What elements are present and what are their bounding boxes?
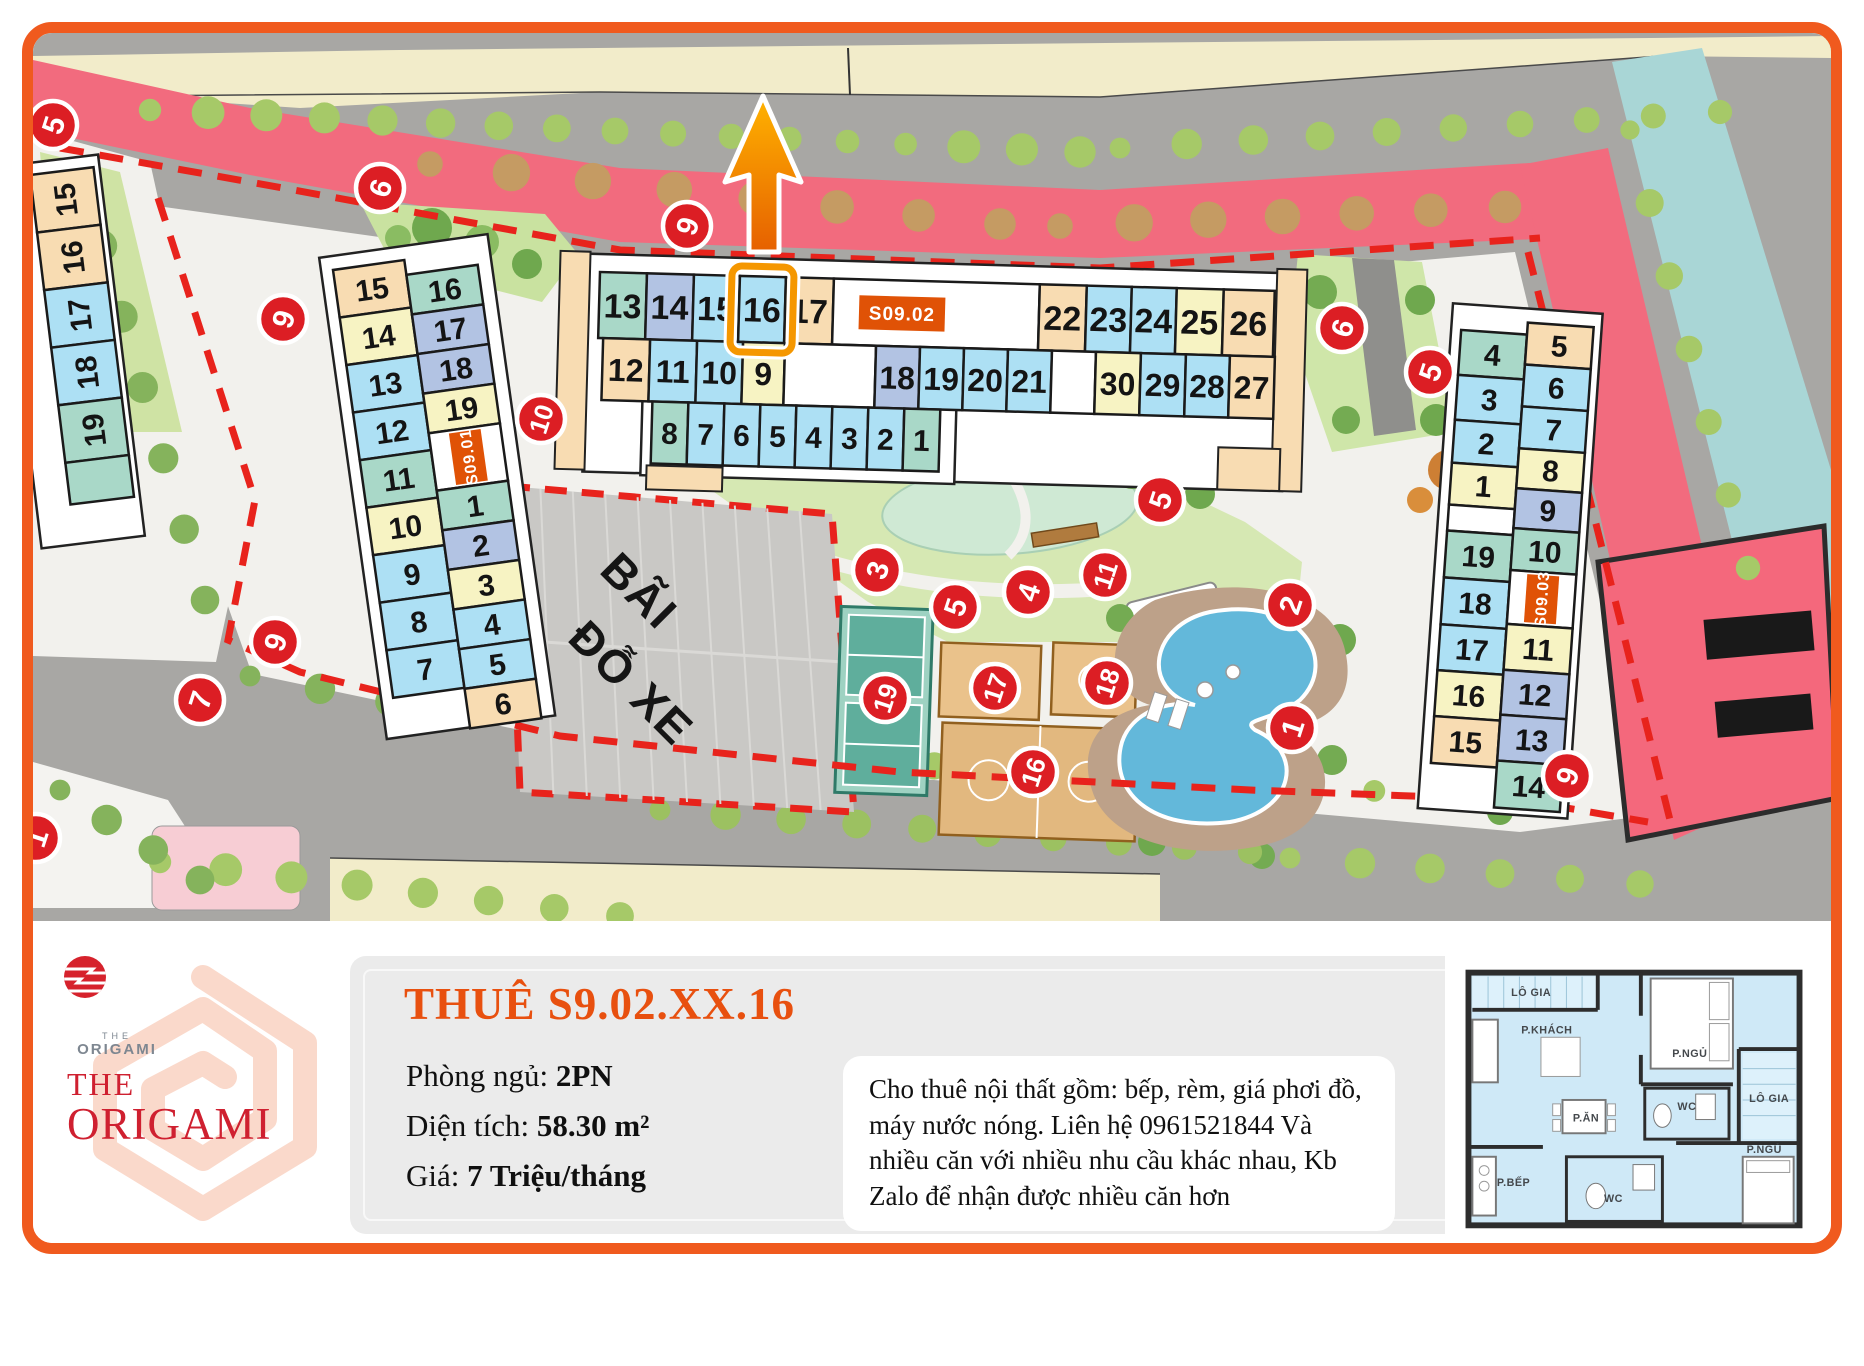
svg-text:7: 7 [697,419,715,452]
svg-text:19: 19 [1461,540,1497,575]
tree-icon [1345,848,1375,878]
building-S09.02: 1314151617S09.02222324252612111091819202… [554,249,1307,508]
svg-text:5: 5 [769,421,787,454]
svg-text:18: 18 [69,354,106,391]
tree-icon [170,515,199,544]
tree-icon [947,130,980,163]
tree-icon [1110,138,1131,159]
svg-text:26: 26 [1229,305,1268,344]
tree-icon [1414,193,1448,227]
tree-icon [1415,854,1445,884]
svg-text:17: 17 [1454,633,1490,668]
svg-text:16: 16 [1451,679,1487,714]
amenity-marker-9: 9 [251,618,299,666]
svg-text:16: 16 [55,239,92,276]
svg-text:11: 11 [1521,633,1555,668]
site-map: BÃIĐỖ XE [33,33,1831,921]
spec-bedrooms: Phòng ngủ: 2PN [406,1058,649,1094]
room-label: P.ĂN [1573,1112,1599,1125]
room-label: LÔ GIA [1511,986,1551,999]
amenity-marker-5: 5 [1136,476,1184,524]
tree-icon [417,151,443,177]
tree-icon [1339,196,1374,231]
tree-icon [1239,125,1269,155]
tree-icon [984,208,1016,240]
listing-description: Cho thuê nội thất gồm: bếp, rèm, giá phơ… [843,1056,1395,1231]
svg-text:25: 25 [1180,303,1219,342]
amenity-marker-1: 1 [33,814,60,862]
svg-text:14: 14 [360,319,398,356]
tree-icon [543,114,571,142]
svg-text:2: 2 [1477,428,1496,462]
svg-text:10: 10 [701,354,738,391]
amenity-marker-9: 9 [259,295,307,343]
tree-icon [342,870,373,901]
amenity-marker-9: 9 [663,202,711,250]
tree-icon [1116,204,1153,241]
tree-icon [908,815,936,843]
tree-icon [660,121,686,147]
room-label: P.NGỦ [1747,1143,1782,1156]
svg-text:15: 15 [353,271,391,308]
tree-icon [1280,848,1301,869]
tree-icon [1708,100,1732,124]
svg-text:4: 4 [1483,339,1502,373]
svg-text:1: 1 [1474,470,1493,504]
tree-icon [1172,129,1202,159]
tree-icon [1440,114,1467,141]
svg-text:21: 21 [1011,363,1048,400]
tree-icon [493,154,530,191]
amenity-marker-7: 7 [176,676,224,724]
svg-text:16: 16 [743,291,782,330]
svg-text:18: 18 [879,359,916,396]
unit-cell-edge--[interactable] [65,455,134,504]
listing-specs: Phòng ngủ: 2PN Diện tích: 58.30 m² Giá: … [406,1058,649,1208]
svg-text:19: 19 [923,361,960,398]
tree-icon [485,112,514,141]
svg-text:11: 11 [655,353,690,390]
svg-text:27: 27 [1233,369,1270,406]
amenity-marker-19: 19 [861,674,909,722]
listing-title: THUÊ S9.02.XX.16 [404,978,795,1030]
amenity-marker-16: 16 [1009,748,1057,796]
svg-text:15: 15 [1448,725,1484,760]
tree-icon [1636,189,1664,217]
svg-text:22: 22 [1043,300,1082,339]
room-label: P.NGỦ [1672,1047,1707,1060]
amenity-marker-1: 1 [1268,704,1316,752]
tree-icon [50,780,71,801]
svg-text:14: 14 [650,289,689,328]
svg-text:28: 28 [1189,368,1226,405]
outer-orange-frame: BÃIĐỖ XE [22,22,1842,1254]
svg-text:13: 13 [1514,724,1550,759]
room-label: LÔ GIA [1749,1092,1789,1105]
tree-icon [127,372,158,403]
tree-icon [1006,133,1038,165]
svg-text:8: 8 [1541,455,1560,489]
amenity-marker-11: 11 [1081,551,1129,599]
svg-text:15: 15 [48,181,85,218]
tree-icon [1620,120,1639,139]
svg-text:23: 23 [1089,301,1128,340]
svg-text:12: 12 [607,352,644,389]
tree-icon [894,133,917,156]
amenity-marker-3: 3 [853,546,901,594]
svg-text:2: 2 [877,424,895,457]
svg-text:29: 29 [1144,367,1181,404]
brand-logo: THE ORIGAMI THE ORIGAMI [53,947,333,1239]
svg-text:6: 6 [1547,372,1566,406]
tree-icon [192,96,225,129]
tree-icon [1190,202,1226,238]
tree-icon [1626,870,1653,897]
tree-icon [1047,213,1073,239]
tree-icon [426,108,455,137]
tree-icon [275,861,307,893]
svg-text:3: 3 [1480,384,1499,418]
amenity-marker-9: 9 [1543,752,1591,800]
amenity-marker-6: 6 [356,164,404,212]
tree-icon [1507,111,1534,138]
tree-icon [148,443,178,473]
room-label: P.BẾP [1497,1176,1530,1189]
room-label: P.KHÁCH [1521,1023,1572,1036]
svg-text:30: 30 [1099,366,1136,403]
amenity-marker-5: 5 [1406,348,1454,396]
spec-price: Giá: 7 Triệu/tháng [406,1158,649,1194]
tree-icon [139,99,161,121]
svg-text:18: 18 [1457,587,1493,622]
svg-text:24: 24 [1134,302,1173,341]
logo-small-wordmark: THE ORIGAMI [65,1031,169,1058]
floorplan-image: LÔ GIAP.KHÁCHP.NGỦWCLÔ GIAP.ĂNP.NGỦP.BẾP… [1445,955,1823,1241]
tree-icon [1265,199,1301,235]
tree-icon [408,878,438,908]
amenity-marker-17: 17 [971,664,1019,712]
tree-icon [191,586,220,615]
logo-big-wordmark: THE ORIGAMI [67,1067,272,1147]
svg-text:1: 1 [913,425,931,458]
tree-icon [1373,118,1401,146]
tree-icon [1656,262,1683,289]
tree-icon [240,666,261,687]
tree-icon [250,99,282,131]
svg-text:16: 16 [426,272,464,309]
tree-icon [602,118,629,145]
svg-text:5: 5 [1550,330,1569,364]
svg-text:20: 20 [967,362,1004,399]
svg-text:13: 13 [603,287,642,326]
spec-area: Diện tích: 58.30 m² [406,1108,649,1144]
svg-text:17: 17 [432,312,470,349]
tree-icon [902,199,935,232]
amenity-marker-2: 2 [1266,581,1314,629]
svg-text:7: 7 [1544,414,1563,448]
tree-icon [1574,107,1600,133]
tree-icon [309,102,340,133]
svg-text:19: 19 [443,391,481,428]
tree-icon [1306,122,1335,151]
svg-text:4: 4 [805,422,823,455]
svg-text:10: 10 [1527,535,1563,570]
tree-icon [1556,865,1584,893]
tree-icon [575,163,611,199]
tree-icon [1064,136,1095,167]
amenity-marker-5: 5 [931,583,979,631]
svg-text:10: 10 [387,509,425,546]
tree-icon [1641,104,1666,129]
tree-icon [139,835,169,865]
svg-text:17: 17 [62,296,99,333]
tree-icon [1696,409,1722,435]
tree-icon [836,130,860,154]
amenity-marker-5: 5 [33,101,77,149]
svg-text:3: 3 [841,423,859,456]
tree-icon [1736,556,1760,580]
room-label: WC [1677,1101,1696,1113]
tree-icon [820,190,854,224]
svg-text:9: 9 [1538,495,1557,529]
tree-icon [186,866,215,895]
svg-text:13: 13 [367,366,405,403]
svg-text:11: 11 [381,462,417,499]
svg-text:S09.02: S09.02 [869,303,936,326]
tree-icon [367,105,397,135]
svg-text:9: 9 [754,356,773,392]
amenity-marker-6: 6 [1318,304,1366,352]
amenity-marker-18: 18 [1083,659,1131,707]
svg-text:8: 8 [661,418,679,451]
tree-icon [1489,191,1522,224]
amenity-marker-4: 4 [1004,568,1052,616]
room-label: WC [1604,1193,1623,1205]
svg-text:12: 12 [373,414,411,451]
tree-icon [1676,336,1703,363]
tree-icon [92,805,122,835]
origami-sphere-icon [53,947,117,1011]
svg-text:18: 18 [437,351,475,388]
listing-info-row: THE ORIGAMI THE ORIGAMI THUÊ S9.02.XX.16… [33,921,1831,1243]
tree-icon [1486,859,1515,888]
svg-text:12: 12 [1517,678,1553,713]
amenity-marker-10: 10 [517,395,565,443]
tree-icon [474,886,503,915]
svg-text:19: 19 [76,411,113,448]
svg-text:6: 6 [733,420,751,453]
tree-icon [1716,482,1741,507]
